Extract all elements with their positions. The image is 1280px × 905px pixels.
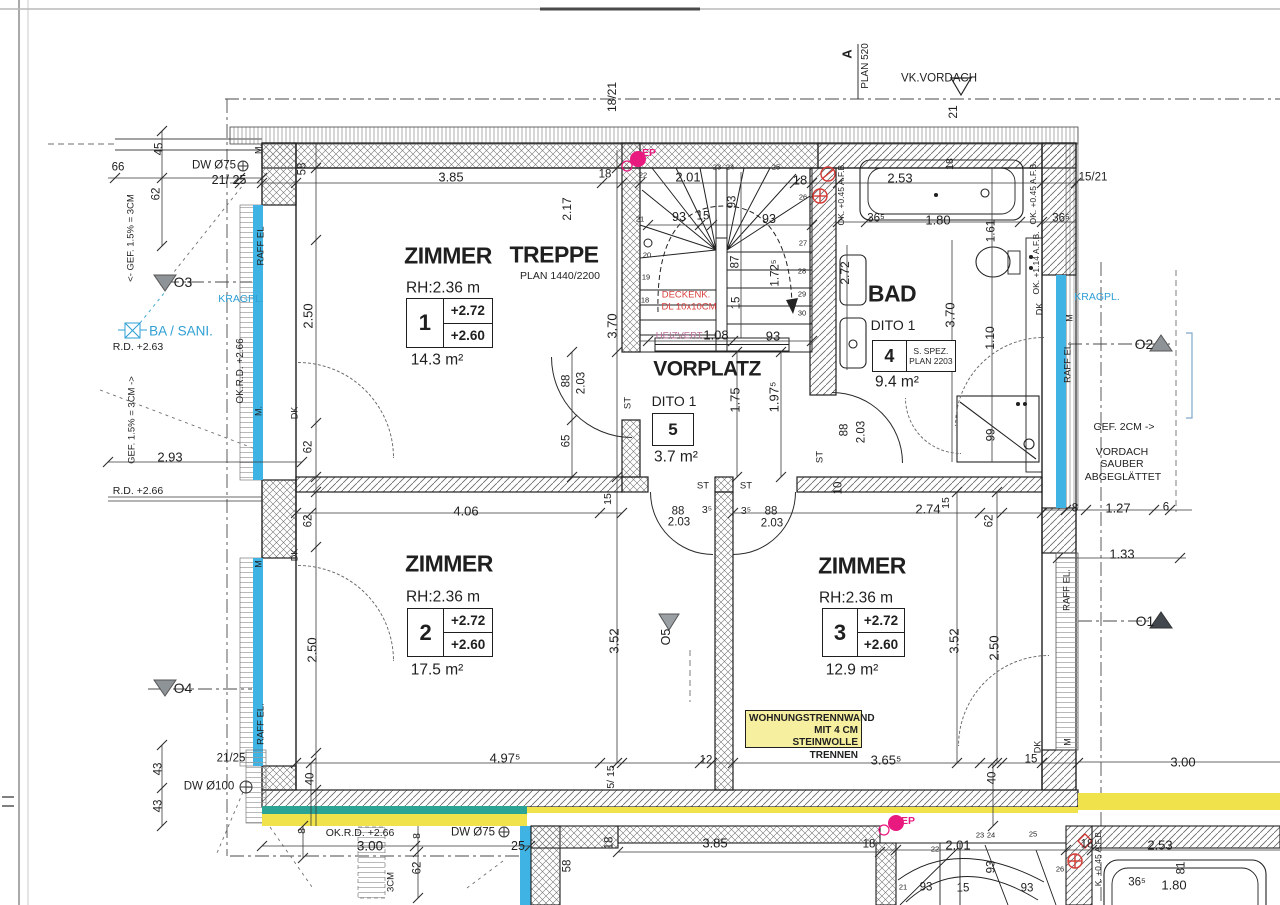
room-title-zimmer-1: ZIMMER <box>404 245 492 268</box>
dim-label: 2.03 <box>761 518 783 530</box>
dim-label: 2.74 <box>915 503 940 516</box>
room-area-label: 3.7 m² <box>654 449 698 465</box>
dim-label: 2.53 <box>1147 839 1172 852</box>
dim-label: 99 <box>986 429 998 442</box>
dim-label: 40 <box>987 772 999 785</box>
dim-label: 8 <box>297 828 308 834</box>
dim-label: 93 <box>672 211 686 224</box>
dim-label: 1.61 <box>986 220 998 242</box>
note-line-3: TRENNEN <box>749 750 858 762</box>
room-level-lower: +2.60 <box>444 324 492 348</box>
room-info-box-2: 2+2.72+2.60 <box>407 608 493 657</box>
dim-label: 3.70 <box>606 313 619 338</box>
dim-label: 1.80 <box>1161 879 1186 892</box>
note-line-1: WOHNUNGSTRENNWAND <box>749 713 858 725</box>
walls <box>262 143 1078 807</box>
dim-label: 58 <box>297 163 309 176</box>
dim-label: M <box>1066 314 1075 322</box>
dim-label: 62 <box>303 441 315 454</box>
room-area-label: 9.4 m² <box>875 374 919 390</box>
dim-label: 43 <box>153 800 165 813</box>
dim-label: 2.17 <box>561 197 573 220</box>
room-height-label: RH:2.36 m <box>819 590 893 606</box>
dim-label: 3.70 <box>944 302 957 327</box>
room-level-upper: +2.72 <box>858 609 904 633</box>
dim-label: 18 <box>793 174 807 187</box>
dim-label: KRAGPL. <box>218 294 264 305</box>
dim-label: 12 <box>700 755 713 767</box>
dim-label: 18 <box>863 839 876 851</box>
dim-label: 3.65⁵ <box>871 754 902 767</box>
dim-label: ST <box>697 481 709 491</box>
room-level-upper: +2.72 <box>444 609 492 633</box>
dim-label: 3.00 <box>1170 756 1195 769</box>
dim-label: KRAGPL. <box>1074 292 1120 303</box>
room-title-bad-4: BAD <box>868 283 916 306</box>
dim-label: 4.97⁵ <box>490 752 521 765</box>
dim-label: 1.27 <box>1105 502 1130 515</box>
dim-label: 62 <box>151 188 163 201</box>
dim-label: ST <box>623 397 633 409</box>
dim-label: DL 10x10CM <box>661 302 716 312</box>
dim-label: 19 <box>642 273 650 281</box>
dim-label: 93 <box>1021 883 1034 895</box>
dim-label: 15/21 <box>1079 172 1108 184</box>
room-title-zimmer-3: ZIMMER <box>818 555 906 578</box>
room-info-box-5: 5 <box>652 413 694 446</box>
dim-label: 93 <box>766 330 780 343</box>
dim-label: 62 <box>303 515 315 528</box>
dim-label: 1.08 <box>703 329 728 342</box>
dim-label: OK.R.D. +2.66 <box>326 828 395 839</box>
dim-label: GEF. 2CM -> <box>1094 422 1155 433</box>
dim-label: HEIZVERT. <box>656 331 704 341</box>
dim-label: 2.03 <box>856 421 868 443</box>
room-info-box-4: 4S. SPEZ.PLAN 2203 <box>872 340 956 372</box>
room-number: 1 <box>407 299 444 347</box>
dim-label: 26 <box>799 193 807 201</box>
dim-label: O2 <box>1135 337 1154 351</box>
dim-label: 3⁵ <box>702 505 712 516</box>
dim-label: 15 <box>1025 754 1038 766</box>
dim-label: DECKENK. <box>662 290 711 300</box>
dim-label: 43 <box>153 763 165 776</box>
room-plan-ref: PLAN 1440/2200 <box>520 271 600 282</box>
dim-label: 15 <box>603 493 614 505</box>
dim-label: R.D. +2.66 <box>113 486 164 497</box>
dim-label: ST <box>740 481 752 491</box>
dim-label: SAUBER <box>1100 459 1143 470</box>
room-title-zimmer-2: ZIMMER <box>405 553 493 576</box>
dim-label: DK <box>1036 303 1045 316</box>
dim-label: 45 <box>154 143 166 156</box>
dim-label: 18 <box>945 158 956 170</box>
dim-label: M. <box>255 144 264 154</box>
dim-label: 2.01 <box>945 839 970 852</box>
dim-label: 18 <box>641 296 649 304</box>
dim-label: OK. +0.45 A.F.B. <box>1029 161 1038 224</box>
room-number: 3 <box>823 609 858 656</box>
dim-label: 4.06 <box>453 505 478 518</box>
room-title-treppe-: TREPPE <box>509 244 598 267</box>
dim-label: 1.72⁵ <box>770 259 782 286</box>
room-area-label: 14.3 m² <box>411 352 464 368</box>
dim-label: RAFF EL. <box>256 703 266 745</box>
dim-label: 2.50 <box>988 635 1001 660</box>
room-info-box-3: 3+2.72+2.60 <box>822 608 905 657</box>
dim-label: EP <box>901 816 915 827</box>
party-wall-note: WOHNUNGSTRENNWAND MIT 4 CM STEINWOLLE TR… <box>745 710 862 748</box>
dim-label: 23 <box>713 163 721 171</box>
dim-label: M. <box>255 406 264 416</box>
dim-label: 21 <box>899 883 907 891</box>
dim-label: 18/21 <box>606 82 618 112</box>
dim-label: 1.97⁵ <box>768 382 781 413</box>
dim-label: 25 <box>1029 830 1037 838</box>
dim-label: DK <box>291 407 300 420</box>
room-number: 5 <box>653 414 693 445</box>
dim-label: 1.75 <box>729 387 742 412</box>
dim-label: 3.52 <box>608 628 621 653</box>
dim-label: 58 <box>562 860 574 873</box>
dim-label: 3CM <box>386 872 396 892</box>
dim-label: 20 <box>643 251 651 259</box>
dim-label: VK.VORDACH <box>901 73 977 85</box>
dim-label: 36⁵ <box>1128 877 1146 889</box>
dim-label: 18 <box>599 169 612 181</box>
dim-label: 22 <box>639 171 647 179</box>
dim-label: RAFF EL. <box>1062 569 1072 611</box>
dim-label: 88 <box>561 375 573 388</box>
dim-label: 25 <box>772 163 780 171</box>
dim-label: 26 <box>1056 865 1064 873</box>
dim-label: 1.10 <box>984 326 996 349</box>
dim-label: 15 <box>957 883 970 895</box>
room-title-vorplatz-5: VORPLATZ <box>653 359 761 380</box>
dim-label: 24 <box>987 831 995 839</box>
bath-fixtures <box>840 160 1039 462</box>
room-level-upper: +2.72 <box>444 299 492 324</box>
dim-label: 93 <box>727 196 739 209</box>
yellow-strip-left <box>262 814 527 826</box>
dim-label: 88 <box>839 424 851 437</box>
dim-label: DK <box>291 549 300 562</box>
dim-label: 25 <box>511 840 525 853</box>
dim-label: 18 <box>604 837 616 850</box>
dim-label: 22 <box>931 845 939 853</box>
dim-label: 6 <box>1163 502 1169 514</box>
washbasin-2 <box>840 318 866 368</box>
dim-label: 23 <box>976 831 984 839</box>
room-level-lower: +2.60 <box>444 633 492 656</box>
dim-label: 2.50 <box>302 303 315 328</box>
dim-label: 10 <box>833 482 845 495</box>
dim-label: OK.R.D. +2.66 <box>236 338 246 403</box>
dim-label: 15 <box>697 211 710 223</box>
dim-label: 21 <box>947 105 959 118</box>
floor-plan-canvas: WOHNUNGSTRENNWAND MIT 4 CM STEINWOLLE TR… <box>0 0 1280 905</box>
room-area-label: 12.9 m² <box>826 662 879 678</box>
dim-label: 3.85 <box>702 837 727 850</box>
dim-label: 1.80 <box>925 214 950 227</box>
dim-label: 93 <box>986 861 998 874</box>
dim-label: 18 <box>1081 839 1094 851</box>
dim-label: 21/25 <box>217 753 246 765</box>
window-glass-right-1 <box>1056 275 1066 508</box>
dim-label: DW Ø75 <box>192 160 236 172</box>
dim-label: 2.03 <box>576 372 588 394</box>
dim-label: OK. +1.14 A.F.B. <box>1032 231 1041 294</box>
dim-label: 62 <box>984 515 996 528</box>
dim-label: M <box>255 560 264 568</box>
room-dito-label: DITO 1 <box>871 318 916 332</box>
note-line-2: MIT 4 CM STEINWOLLE <box>749 725 858 749</box>
room-area-label: 17.5 m² <box>411 662 464 678</box>
dim-label: 93 <box>920 882 933 894</box>
dim-label: ABGEGLÄTTET <box>1085 472 1161 483</box>
dim-label: 2.53 <box>887 172 912 185</box>
yellow-strip-mid <box>527 807 1078 813</box>
dim-label: 21/ 25 <box>212 174 247 187</box>
dim-label: EP <box>642 148 656 159</box>
dim-label: O3 <box>174 275 193 289</box>
room-height-label: RH:2.36 m <box>406 280 480 296</box>
dim-label: R.D. +2.63 <box>113 342 164 353</box>
dim-label: 62 <box>412 862 424 875</box>
dim-label: 66 <box>112 162 125 174</box>
dim-label: 3.00 <box>357 839 383 853</box>
ba-sani-symbol <box>118 323 147 338</box>
dim-label: RAFF EL. <box>1063 341 1073 383</box>
toilet <box>976 247 1010 277</box>
dim-label: 3⁵ <box>741 506 751 517</box>
dim-label: <- GEF. 1.5% = 3CM <box>126 194 136 282</box>
dim-label: 81 <box>1176 862 1188 875</box>
dim-label: 15 <box>941 497 952 509</box>
dim-label: 2.03 <box>668 517 690 529</box>
dim-label: PLAN 520 <box>861 43 871 89</box>
room-spez-line: PLAN 2203 <box>909 356 952 366</box>
dim-label: DK <box>1034 741 1043 754</box>
dim-label: M <box>1064 738 1073 746</box>
dim-label: A <box>841 49 854 58</box>
teal-insulation-strip <box>262 806 527 814</box>
dim-label: O4 <box>174 681 193 695</box>
dim-label: K. +0.45 A.F.B. <box>1094 830 1103 886</box>
room-level-lower: +2.60 <box>858 633 904 656</box>
bathtub <box>860 160 1023 220</box>
dim-label: 2.01 <box>675 171 700 184</box>
dim-label: 93 <box>762 213 776 226</box>
dim-label: 24 <box>726 163 734 171</box>
dim-label: VORDACH <box>1096 447 1149 458</box>
dim-label: 2.93 <box>157 451 182 464</box>
dim-label: 28 <box>798 267 806 275</box>
yellow-strip-right <box>1078 793 1280 810</box>
dim-label: 29 <box>798 290 806 298</box>
dim-label: RAFF EL <box>256 226 266 265</box>
floor-plan-svg <box>0 0 1280 905</box>
dim-label: 36⁵ <box>867 213 885 225</box>
dim-label: 5/ 15 <box>606 765 617 788</box>
dim-label: DW Ø75 <box>451 827 495 839</box>
dim-label: GEF. 1.5% = 3CM -> <box>127 376 137 464</box>
dim-label: 2.50 <box>306 637 319 662</box>
room-number: 2 <box>408 609 444 656</box>
dim-label: 65 <box>561 435 573 448</box>
dim-label: 87 <box>730 256 742 269</box>
dim-label: 2.72 <box>839 261 851 284</box>
dim-label: 30 <box>798 309 806 317</box>
dim-label: 8 <box>1072 503 1078 515</box>
room-height-label: RH:2.36 m <box>406 589 480 605</box>
dim-label: 21 <box>636 215 644 223</box>
dim-label: ST <box>815 451 825 463</box>
dim-label: BA / SANI. <box>149 324 213 338</box>
room-spez-line: S. SPEZ. <box>913 346 948 356</box>
room-dito-label: DITO 1 <box>652 394 697 408</box>
dim-label: OK. +0.45 A.F.B. <box>837 162 846 225</box>
dim-label: 15 <box>731 297 743 310</box>
room-info-box-1: 1+2.72+2.60 <box>406 298 493 348</box>
dim-label: 3.52 <box>948 628 961 653</box>
dim-label: O5 <box>660 629 673 646</box>
dim-label: 8 <box>412 833 423 839</box>
dim-label: DW Ø100 <box>184 781 235 793</box>
dim-label: 27 <box>799 239 807 247</box>
dim-label: O1 <box>1136 614 1155 628</box>
dim-label: 40 <box>305 773 317 786</box>
dim-label: 88 <box>765 506 778 518</box>
room-number: 4 <box>873 341 907 371</box>
dim-label: 3.85 <box>438 171 463 184</box>
dim-label: 36⁵ <box>1052 213 1070 225</box>
dim-label: 1.33 <box>1109 548 1134 561</box>
